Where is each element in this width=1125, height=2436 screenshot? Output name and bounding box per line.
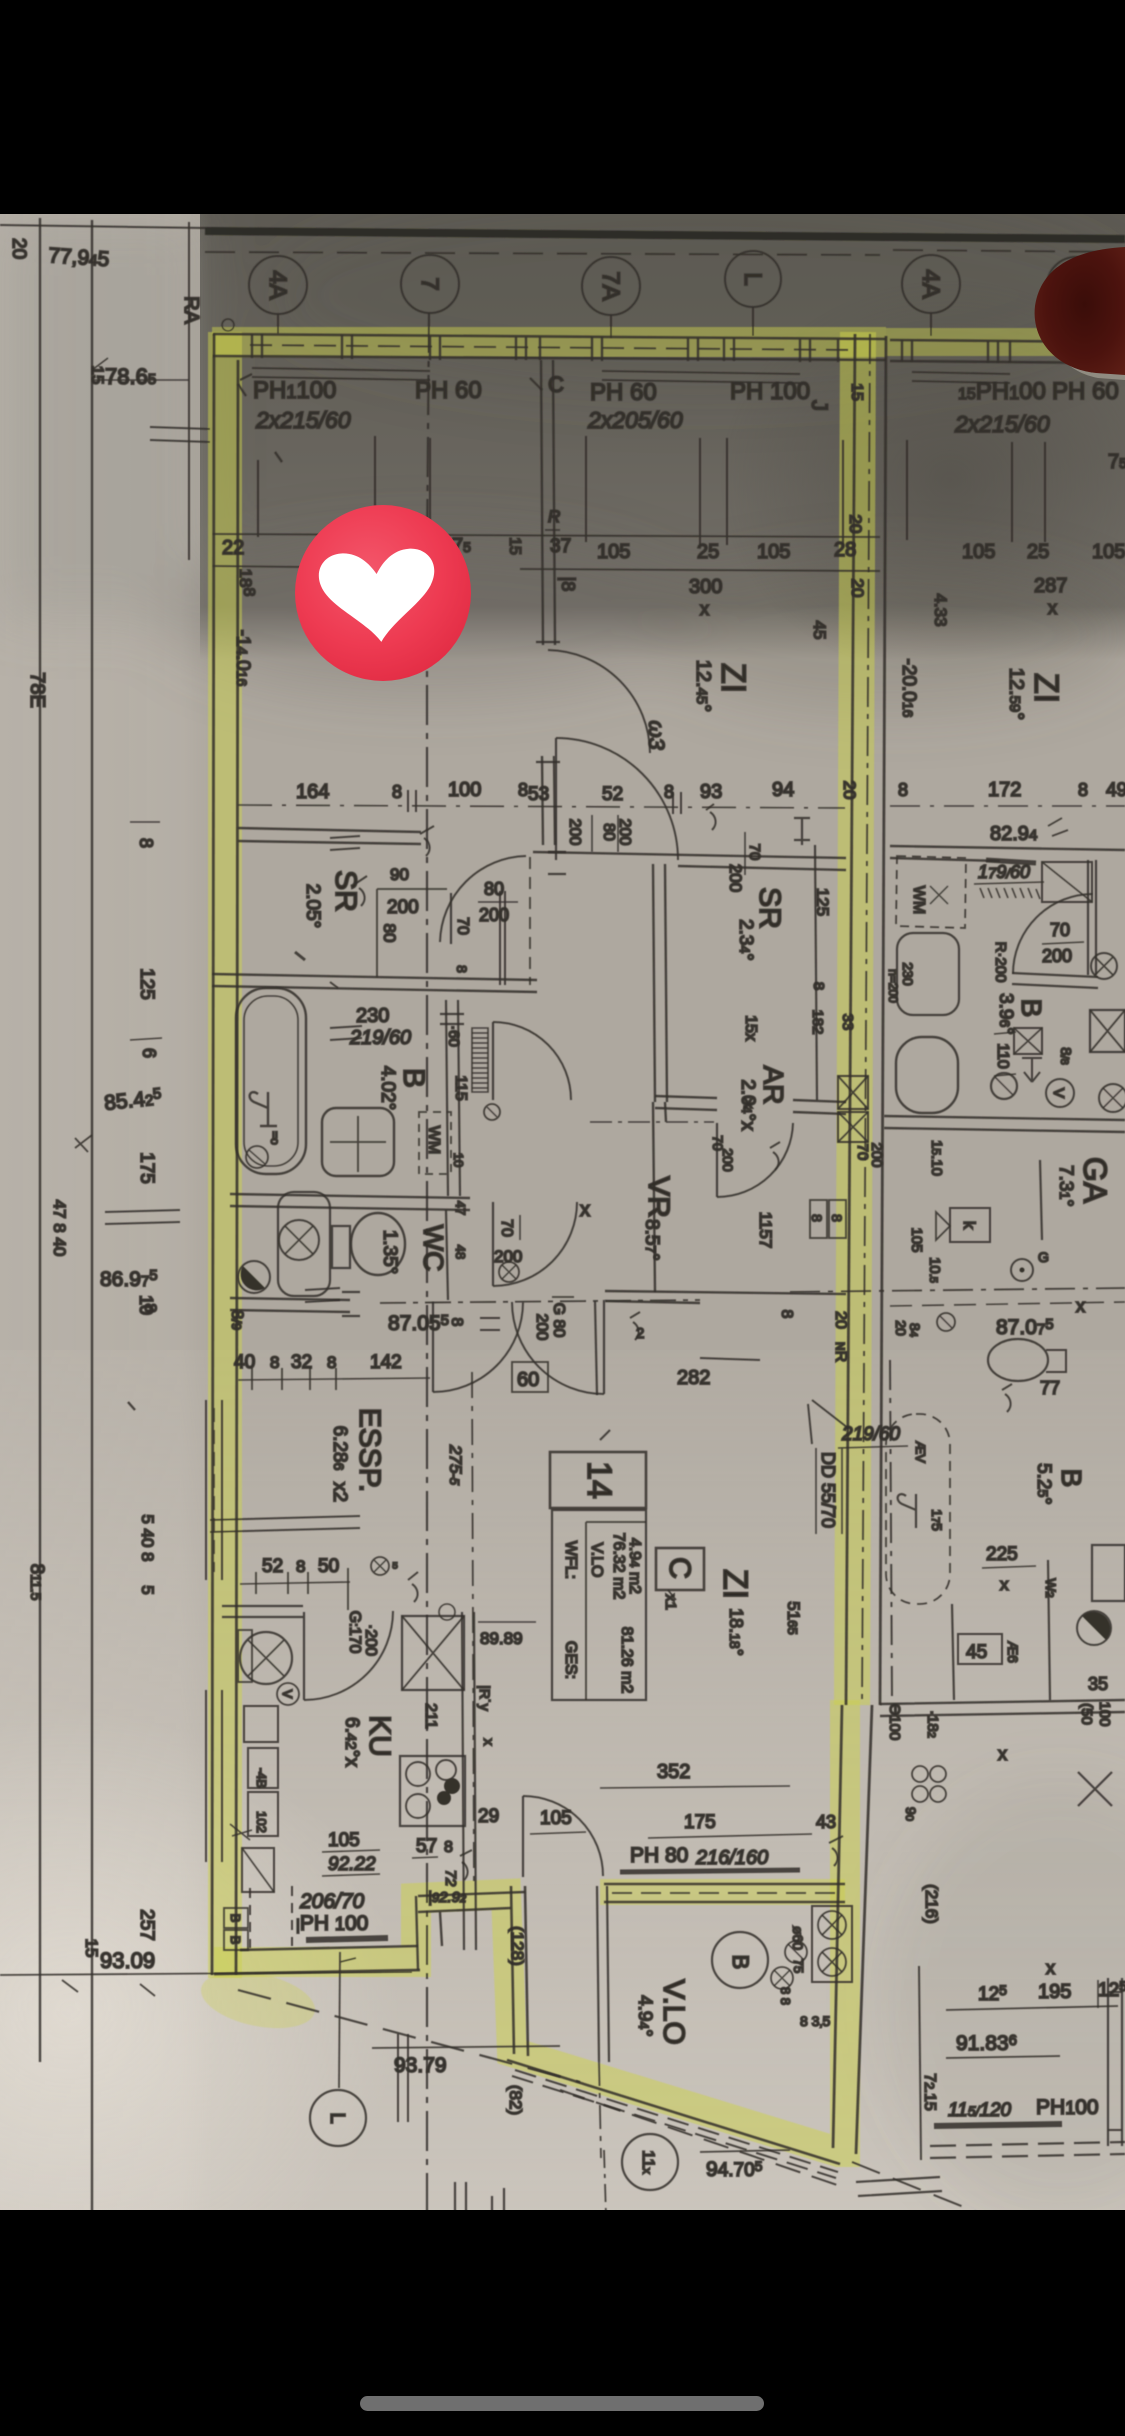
svg-text:(50: (50: [1078, 1703, 1095, 1725]
svg-text:86.975: 86.975: [100, 1267, 158, 1291]
svg-text:29: 29: [478, 1806, 499, 1827]
svg-text:12.59°: 12.59°: [1005, 668, 1027, 721]
svg-text:81.26 m2: 81.26 m2: [618, 1627, 635, 1694]
svg-text:KU: KU: [363, 1715, 396, 1757]
svg-text:200: 200: [533, 1314, 550, 1341]
svg-text:70: 70: [1050, 920, 1070, 940]
svg-text:7A: 7A: [597, 271, 624, 300]
svg-text:V.LO: V.LO: [588, 1543, 605, 1578]
svg-text:3.96°: 3.96°: [995, 993, 1016, 1035]
svg-text:|8: |8: [558, 577, 578, 592]
svg-text:48: 48: [453, 1245, 468, 1259]
svg-text:43: 43: [816, 1812, 836, 1832]
svg-text:8: 8: [392, 782, 402, 802]
svg-text:=o: =o: [268, 1131, 282, 1145]
svg-text:x: x: [1000, 1575, 1009, 1594]
svg-text:WM: WM: [425, 1126, 442, 1154]
svg-text:257: 257: [136, 1909, 157, 1941]
svg-text:52: 52: [602, 784, 623, 805]
svg-text:8/9: 8/9: [228, 1310, 247, 1330]
svg-text:ø60: ø60: [790, 1926, 806, 1950]
svg-text:75: 75: [791, 1959, 806, 1973]
svg-text:5.25°: 5.25°: [1033, 1463, 1054, 1505]
svg-text:·200: ·200: [362, 1624, 379, 1656]
svg-text:200: 200: [566, 819, 583, 846]
svg-text:8: 8: [141, 1303, 160, 1312]
svg-text:300: 300: [689, 576, 722, 598]
svg-text:SR: SR: [753, 887, 786, 929]
svg-text:4.94°: 4.94°: [634, 1995, 655, 2037]
svg-text:6.42°x: 6.42°x: [341, 1717, 362, 1767]
svg-text:70: 70: [746, 844, 763, 861]
svg-text:ZI: ZI: [1027, 673, 1065, 703]
svg-text:75: 75: [1108, 451, 1125, 473]
svg-text:8: 8: [809, 1214, 825, 1222]
svg-text:105: 105: [757, 541, 790, 563]
svg-text:WFL:: WFL:: [562, 1541, 579, 1579]
svg-text:2.05°: 2.05°: [302, 884, 323, 929]
svg-text:G: G: [1038, 1249, 1049, 1265]
svg-text:x: x: [1048, 598, 1057, 618]
svg-text:195: 195: [1038, 1981, 1071, 2003]
svg-text:G:170: G:170: [346, 1611, 363, 1654]
svg-text:47: 47: [453, 1201, 468, 1215]
svg-text:4.02°: 4.02°: [377, 1066, 398, 1111]
svg-text:WM: WM: [910, 886, 927, 914]
svg-text:15x: 15x: [742, 1015, 759, 1041]
svg-text:-20.016: -20.016: [898, 659, 919, 718]
svg-text:77,945: 77,945: [48, 244, 110, 271]
svg-text:47 8 40: 47 8 40: [50, 1200, 69, 1257]
svg-text:125: 125: [136, 968, 157, 1000]
svg-text:VR: VR: [642, 1176, 675, 1218]
svg-text:(216): (216): [922, 1884, 941, 1924]
svg-text:B: B: [1056, 1469, 1087, 1488]
svg-text:C: C: [548, 372, 564, 397]
svg-text:R·200: R·200: [992, 942, 1009, 983]
svg-text:7: 7: [416, 277, 443, 290]
svg-text:175: 175: [136, 1152, 157, 1184]
svg-text:35: 35: [1088, 1674, 1108, 1694]
svg-text:60: 60: [517, 1369, 539, 1391]
svg-text:105: 105: [962, 541, 995, 563]
svg-text:6.286: 6.286: [329, 1426, 350, 1471]
svg-text:87.075: 87.075: [996, 1316, 1054, 1339]
svg-text:L: L: [739, 272, 766, 285]
svg-text:45: 45: [810, 621, 829, 640]
svg-text:x: x: [744, 1093, 753, 1112]
svg-text:100: 100: [1096, 1701, 1113, 1726]
svg-text:8.57°: 8.57°: [641, 1219, 662, 1261]
svg-text:352: 352: [657, 1761, 690, 1783]
svg-text:2: 2: [636, 1325, 644, 1342]
svg-text:4A: 4A: [264, 270, 291, 299]
svg-text:115/120: 115/120: [948, 2100, 1012, 2121]
svg-text:J: J: [807, 400, 832, 411]
svg-text:ZI: ZI: [716, 1569, 754, 1599]
svg-text:12.45°: 12.45°: [692, 660, 714, 713]
svg-text:164: 164: [296, 781, 329, 803]
svg-text:100: 100: [448, 779, 481, 801]
svg-text:77: 77: [1040, 1378, 1060, 1398]
svg-text:20: 20: [840, 781, 859, 800]
svg-text:8: 8: [240, 588, 257, 597]
svg-text:80: 80: [484, 879, 504, 899]
svg-text:206/70: 206/70: [299, 1890, 365, 1913]
svg-text:V: V: [280, 1690, 295, 1699]
svg-text:32: 32: [291, 1352, 312, 1373]
svg-text:172: 172: [988, 779, 1021, 801]
svg-text:8 8: 8 8: [778, 1987, 793, 2005]
svg-text:92.22: 92.22: [328, 1854, 376, 1875]
svg-text:ω3: ω3: [644, 720, 669, 750]
svg-text:5165: 5165: [784, 1601, 803, 1634]
svg-text:C: C: [663, 1557, 696, 1579]
svg-text:RA: RA: [180, 296, 202, 324]
svg-text:50: 50: [318, 1556, 339, 1577]
svg-text:76.32 m2: 76.32 m2: [610, 1533, 627, 1600]
svg-text:219/60: 219/60: [349, 1027, 411, 1049]
svg-text:-14.016: -14.016: [232, 630, 253, 687]
svg-text:8: 8: [518, 780, 528, 800]
svg-text:G 80: G 80: [550, 1303, 567, 1338]
svg-text:200: 200: [479, 905, 509, 925]
svg-text:53: 53: [528, 784, 549, 805]
svg-text:20: 20: [832, 1311, 849, 1329]
svg-text:8: 8: [270, 1353, 279, 1372]
svg-text:94.705: 94.705: [706, 2158, 763, 2181]
svg-text:57: 57: [416, 1836, 437, 1857]
svg-text:82.94: 82.94: [990, 823, 1037, 845]
svg-text:182: 182: [809, 1009, 826, 1034]
svg-text:8: 8: [448, 1318, 465, 1327]
svg-text:230: 230: [356, 1005, 389, 1027]
svg-text:n=200: n=200: [886, 969, 900, 1003]
svg-text:2x215/60: 2x215/60: [954, 411, 1050, 437]
svg-text:x2: x2: [329, 1482, 350, 1502]
svg-text:PH100: PH100: [1036, 2096, 1099, 2119]
svg-text:PH 60: PH 60: [590, 379, 657, 406]
svg-text:110: 110: [994, 1043, 1011, 1069]
svg-text:25: 25: [1027, 541, 1049, 563]
svg-text:8: 8: [136, 838, 156, 848]
svg-text:ESSP.: ESSP.: [353, 1408, 386, 1493]
svg-text:20: 20: [846, 515, 865, 534]
svg-text:10: 10: [451, 1153, 466, 1167]
svg-text:B: B: [397, 1068, 430, 1088]
svg-text:V.LO: V.LO: [657, 1979, 690, 2045]
svg-text:80: 80: [380, 924, 399, 943]
svg-text:22: 22: [222, 537, 244, 559]
svg-text:18.18°: 18.18°: [726, 1608, 746, 1656]
svg-text:⁵: ⁵: [392, 1559, 398, 1576]
svg-text:B: B: [228, 1936, 243, 1945]
svg-text:2x205/60: 2x205/60: [587, 407, 683, 433]
svg-text:x: x: [481, 1739, 497, 1746]
svg-text:175: 175: [684, 1812, 716, 1833]
svg-text:AR: AR: [758, 1066, 789, 1105]
svg-text:45: 45: [966, 1642, 987, 1663]
svg-text:78E: 78E: [26, 672, 48, 708]
svg-text:B: B: [1016, 999, 1047, 1018]
svg-text:72.15: 72.15: [921, 2073, 938, 2111]
svg-text:4.33: 4.33: [931, 593, 950, 626]
svg-text:|R˙y: |R˙y: [477, 1685, 493, 1710]
svg-text:(82): (82): [506, 2085, 525, 2115]
svg-text:GA: GA: [1077, 1157, 1113, 1204]
svg-text:70: 70: [454, 917, 471, 935]
svg-text:(128): (128): [508, 1926, 527, 1966]
svg-text:287: 287: [1034, 575, 1067, 597]
svg-text:15: 15: [506, 537, 523, 555]
svg-text:225: 225: [986, 1544, 1018, 1565]
svg-text:ZI: ZI: [714, 663, 752, 693]
svg-text:70: 70: [498, 1219, 515, 1237]
svg-text:GES:: GES:: [562, 1641, 579, 1679]
svg-text:20: 20: [8, 238, 29, 259]
svg-text:93: 93: [700, 781, 722, 803]
svg-text:·60: ·60: [445, 1025, 462, 1047]
svg-text:216/160: 216/160: [695, 1847, 768, 1869]
svg-text:20: 20: [848, 579, 867, 598]
svg-text:200: 200: [726, 864, 745, 892]
svg-text:Ɵ100: Ɵ100: [886, 1704, 903, 1741]
svg-text:WC: WC: [418, 1225, 449, 1272]
svg-text:811.5: 811.5: [26, 1564, 47, 1601]
svg-text:8: 8: [327, 1353, 336, 1372]
svg-text:105: 105: [1092, 541, 1125, 563]
svg-text:PH 60: PH 60: [415, 377, 482, 404]
svg-text:275-5: 275-5: [446, 1444, 465, 1486]
svg-text:93.09: 93.09: [100, 1948, 155, 1973]
svg-text:6: 6: [139, 1048, 159, 1058]
svg-text:8 3,5: 8 3,5: [800, 2013, 831, 2029]
svg-text:105: 105: [328, 1830, 360, 1851]
svg-text:125: 125: [813, 888, 832, 916]
svg-text:230: 230: [900, 962, 916, 986]
svg-text:4.94 m2: 4.94 m2: [626, 1538, 643, 1594]
svg-text:2.34°: 2.34°: [735, 919, 756, 961]
svg-text:Æ6: Æ6: [1005, 1641, 1021, 1663]
svg-text:PH 80: PH 80: [630, 1844, 688, 1867]
svg-text:105: 105: [540, 1808, 572, 1829]
svg-text:200: 200: [494, 1247, 522, 1266]
svg-text:200: 200: [720, 1148, 736, 1172]
svg-text:90: 90: [390, 865, 409, 884]
svg-text:200: 200: [387, 897, 419, 918]
svg-text:8: 8: [810, 982, 827, 990]
svg-text:x: x: [1076, 1296, 1085, 1316]
svg-text:x1: x1: [662, 1594, 679, 1610]
svg-text:B: B: [228, 1914, 243, 1923]
svg-text:8: 8: [444, 1839, 453, 1856]
svg-text:94: 94: [772, 779, 794, 801]
svg-text:PH 100: PH 100: [730, 378, 810, 405]
svg-text:200: 200: [1042, 946, 1072, 966]
svg-text:87.055: 87.055: [388, 1312, 449, 1335]
svg-text:x: x: [700, 599, 709, 619]
svg-text:5 40 8: 5 40 8: [138, 1514, 157, 1561]
svg-text:DD 55/70: DD 55/70: [818, 1452, 838, 1528]
svg-text:ÆV: ÆV: [913, 1441, 928, 1463]
svg-text:179/60: 179/60: [978, 862, 1030, 882]
svg-text:15: 15: [848, 383, 865, 401]
svg-text:14: 14: [580, 1461, 618, 1499]
svg-text:k: k: [960, 1221, 977, 1230]
svg-text:8: 8: [454, 965, 470, 973]
svg-text:25: 25: [697, 541, 719, 563]
svg-text:8: 8: [778, 1310, 795, 1319]
svg-text:20: 20: [893, 1320, 909, 1336]
svg-text:x: x: [998, 1744, 1007, 1764]
svg-text:142: 142: [370, 1352, 402, 1373]
svg-text:7.31°: 7.31°: [1055, 1165, 1076, 1207]
svg-text:52: 52: [262, 1556, 283, 1577]
svg-text:V: V: [1050, 1088, 1067, 1098]
svg-text:5: 5: [138, 1585, 157, 1594]
svg-text:8: 8: [829, 1214, 845, 1222]
svg-text:105: 105: [908, 1227, 925, 1252]
svg-text:105: 105: [597, 541, 630, 563]
svg-text:SR: SR: [329, 870, 362, 912]
svg-text:15.10: 15.10: [928, 1140, 945, 1176]
svg-text:282: 282: [677, 1367, 710, 1389]
svg-text:15: 15: [82, 1939, 101, 1958]
svg-text:8: 8: [296, 1557, 305, 1576]
svg-text:4A: 4A: [917, 269, 944, 298]
svg-text:x: x: [580, 1199, 590, 1221]
svg-text:211: 211: [422, 1703, 439, 1729]
svg-text:72: 72: [442, 1870, 459, 1887]
svg-text:1157: 1157: [756, 1212, 775, 1249]
svg-text:33: 33: [839, 1014, 856, 1031]
svg-text:8: 8: [898, 780, 908, 800]
svg-text:89.89: 89.89: [480, 1629, 523, 1648]
svg-text:L: L: [326, 2112, 348, 2123]
svg-text:2x215/60: 2x215/60: [255, 407, 351, 433]
svg-text:|PH 100: |PH 100: [296, 1912, 368, 1935]
svg-text:8: 8: [1078, 780, 1088, 800]
svg-text:-4B: -4B: [254, 1768, 269, 1788]
svg-text:102: 102: [254, 1811, 269, 1833]
svg-text:B: B: [728, 1955, 753, 1970]
svg-text:x: x: [1046, 1958, 1055, 1978]
svg-text:115: 115: [452, 1075, 469, 1101]
svg-text:ɴR: ɴR: [832, 1342, 849, 1362]
svg-text:PH1100: PH1100: [253, 377, 336, 404]
svg-text:200: 200: [868, 1142, 885, 1167]
svg-text:49: 49: [1106, 780, 1125, 801]
svg-text:93.79: 93.79: [394, 2054, 447, 2077]
svg-text:80: 80: [600, 823, 617, 841]
svg-text:91.836: 91.836: [956, 2032, 1017, 2055]
svg-text:PH 60: PH 60: [1052, 378, 1119, 405]
